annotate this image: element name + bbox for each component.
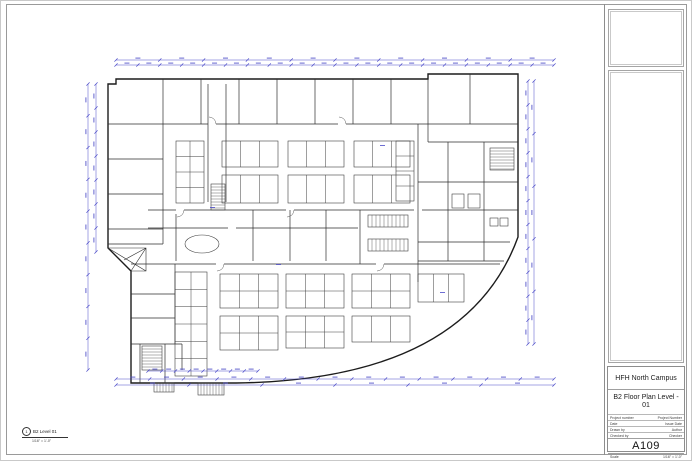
titleblock-revision-box bbox=[608, 70, 684, 363]
view-title: 1 B2 Level 01 1/16" = 1'-0" bbox=[22, 427, 68, 443]
sheet-number: A109 bbox=[608, 438, 684, 453]
drawing-sheet: 1 B2 Level 01 1/16" = 1'-0" HFH North Ca… bbox=[0, 0, 692, 461]
project-name: HFH North Campus bbox=[608, 367, 684, 389]
conference-table bbox=[185, 235, 219, 253]
scale-value: 1/16" = 1'-0" bbox=[663, 455, 682, 459]
field-label: Drawn by bbox=[610, 428, 625, 432]
scale-label: Scale bbox=[610, 455, 619, 459]
stair-and-fixture-hatching bbox=[142, 148, 514, 395]
view-name: B2 Level 01 bbox=[33, 429, 57, 434]
field-value: Author bbox=[672, 428, 682, 432]
interior-walls bbox=[108, 74, 518, 383]
scale-row: Scale 1/16" = 1'-0" bbox=[608, 453, 684, 461]
field-label: Checked by bbox=[610, 434, 628, 438]
field-value: Issue Date bbox=[665, 422, 682, 426]
exterior-walls bbox=[108, 74, 518, 383]
titleblock-info: HFH North Campus B2 Floor Plan Level - 0… bbox=[607, 366, 685, 452]
field-value: Project Number bbox=[658, 416, 682, 420]
floor-plan-drawing bbox=[80, 52, 572, 406]
titleblock-logo-box bbox=[608, 9, 684, 67]
field-label: Project number bbox=[610, 416, 634, 420]
field-label: Date bbox=[610, 422, 617, 426]
field-value: Checker bbox=[669, 434, 682, 438]
workstation-clusters bbox=[175, 141, 464, 376]
sheet-title: B2 Floor Plan Level - 01 bbox=[608, 389, 684, 414]
titleblock-strip: HFH North Campus B2 Floor Plan Level - 0… bbox=[604, 4, 688, 455]
view-scale-text: 1/16" = 1'-0" bbox=[32, 439, 68, 443]
dimension-strings bbox=[85, 58, 555, 387]
detail-number-bubble: 1 bbox=[22, 427, 31, 436]
